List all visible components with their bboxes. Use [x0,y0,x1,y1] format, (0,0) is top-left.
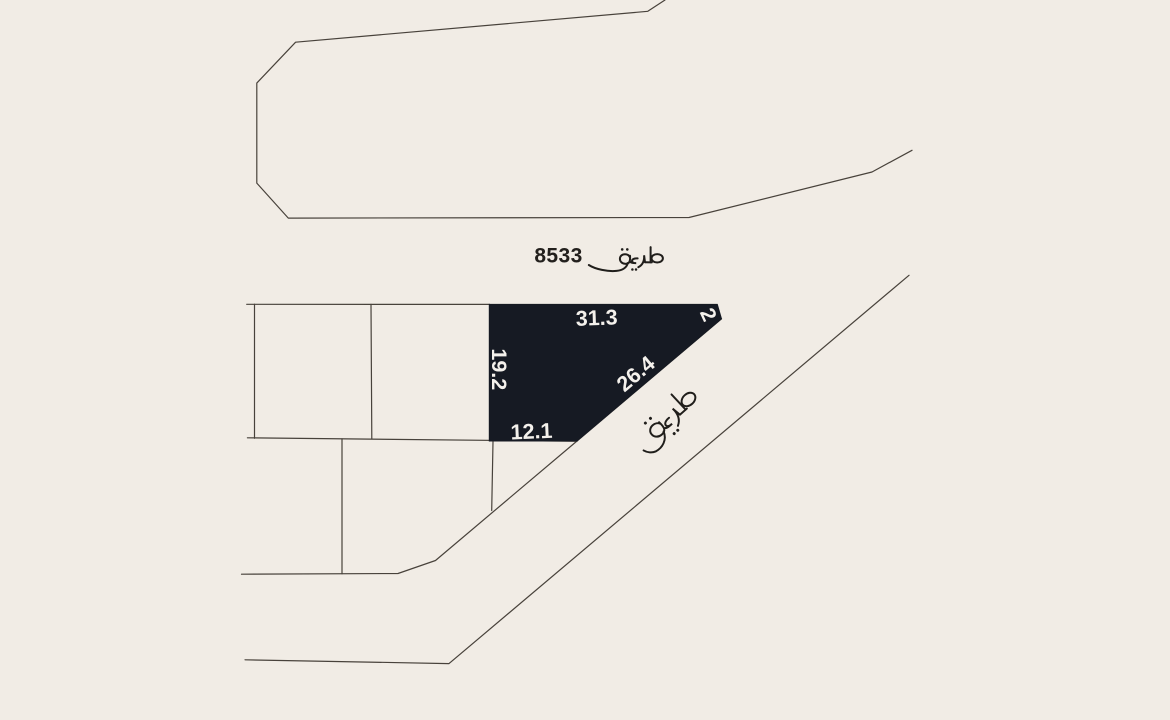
svg-text:8533: 8533 [534,245,582,268]
svg-text:12.1: 12.1 [510,419,553,445]
svg-text:19.2: 19.2 [487,348,511,390]
svg-text:31.3: 31.3 [575,305,618,330]
